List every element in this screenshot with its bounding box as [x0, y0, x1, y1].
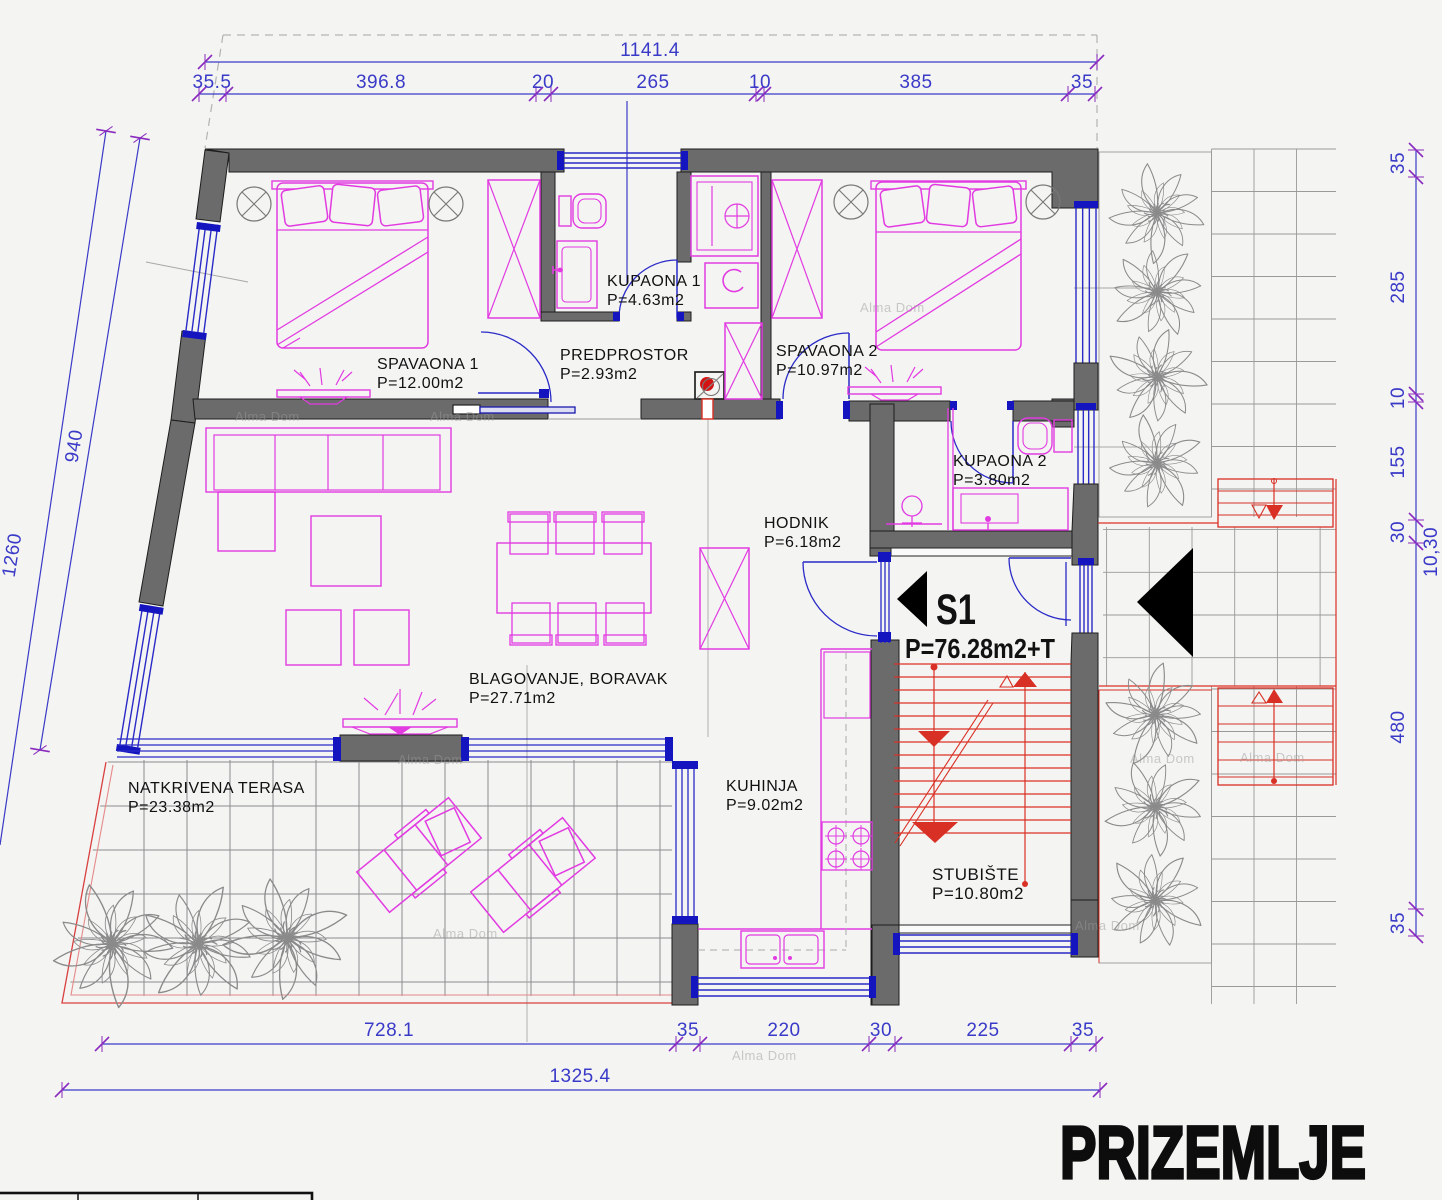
- svg-text:396.8: 396.8: [356, 72, 406, 93]
- svg-text:KUHINJA: KUHINJA: [726, 778, 798, 795]
- svg-text:KUPAONA 1: KUPAONA 1: [607, 273, 701, 290]
- svg-text:155: 155: [1388, 445, 1409, 478]
- svg-text:Alma Dom: Alma Dom: [1240, 750, 1305, 765]
- svg-text:HODNIK: HODNIK: [764, 515, 829, 532]
- svg-text:20: 20: [532, 72, 554, 93]
- svg-text:P=23.38m2: P=23.38m2: [128, 799, 215, 816]
- svg-text:480: 480: [1388, 710, 1409, 743]
- svg-text:1141.4: 1141.4: [620, 40, 680, 61]
- svg-text:STUBIŠTE: STUBIŠTE: [932, 865, 1019, 884]
- svg-text:P=10.97m2: P=10.97m2: [776, 362, 863, 379]
- svg-text:30: 30: [1388, 521, 1409, 543]
- svg-text:35: 35: [1072, 1020, 1094, 1041]
- svg-text:Alma Dom: Alma Dom: [235, 409, 300, 424]
- svg-text:10,30: 10,30: [1421, 527, 1442, 577]
- svg-text:Alma Dom: Alma Dom: [860, 300, 925, 315]
- svg-text:Alma Dom: Alma Dom: [1130, 751, 1195, 766]
- svg-text:35: 35: [1071, 72, 1093, 93]
- svg-text:Alma Dom: Alma Dom: [732, 1048, 797, 1063]
- svg-text:35: 35: [1388, 152, 1409, 174]
- svg-text:KUPAONA 2: KUPAONA 2: [953, 453, 1047, 470]
- svg-text:35: 35: [677, 1020, 699, 1041]
- svg-text:P=10.80m2: P=10.80m2: [932, 884, 1024, 903]
- svg-text:225: 225: [966, 1020, 999, 1041]
- svg-text:SPAVAONA 1: SPAVAONA 1: [377, 356, 479, 373]
- svg-text:265: 265: [636, 72, 669, 93]
- svg-text:1325.4: 1325.4: [549, 1066, 610, 1087]
- svg-text:PRIZEMLJE: PRIZEMLJE: [1060, 1111, 1366, 1194]
- svg-text:PREDPROSTOR: PREDPROSTOR: [560, 347, 689, 364]
- svg-text:285: 285: [1388, 270, 1409, 303]
- svg-text:385: 385: [899, 72, 932, 93]
- svg-text:Alma Dom: Alma Dom: [398, 752, 463, 767]
- svg-text:P=27.71m2: P=27.71m2: [469, 690, 556, 707]
- svg-text:Alma Dom: Alma Dom: [1075, 918, 1140, 933]
- svg-text:NATKRIVENA TERASA: NATKRIVENA TERASA: [128, 780, 305, 797]
- svg-text:S1: S1: [936, 586, 976, 634]
- svg-text:220: 220: [767, 1020, 800, 1041]
- svg-text:P=4.63m2: P=4.63m2: [607, 292, 684, 309]
- svg-text:P=9.02m2: P=9.02m2: [726, 797, 803, 814]
- svg-text:35: 35: [1388, 912, 1409, 934]
- svg-text:Alma Dom: Alma Dom: [430, 409, 495, 424]
- svg-text:P=12.00m2: P=12.00m2: [377, 375, 464, 392]
- svg-text:10: 10: [749, 72, 771, 93]
- svg-text:10: 10: [1388, 387, 1409, 409]
- svg-text:30: 30: [870, 1020, 892, 1041]
- svg-text:P=6.18m2: P=6.18m2: [764, 534, 841, 551]
- svg-text:P=3.80m2: P=3.80m2: [953, 472, 1030, 489]
- svg-text:BLAGOVANJE, BORAVAK: BLAGOVANJE, BORAVAK: [469, 671, 668, 688]
- svg-text:SPAVAONA 2: SPAVAONA 2: [776, 343, 878, 360]
- svg-text:728.1: 728.1: [364, 1020, 414, 1041]
- svg-text:Alma Dom: Alma Dom: [433, 926, 498, 941]
- svg-text:P=2.93m2: P=2.93m2: [560, 366, 637, 383]
- svg-text:P=76.28m2+T: P=76.28m2+T: [905, 633, 1055, 664]
- svg-text:35.5: 35.5: [193, 72, 232, 93]
